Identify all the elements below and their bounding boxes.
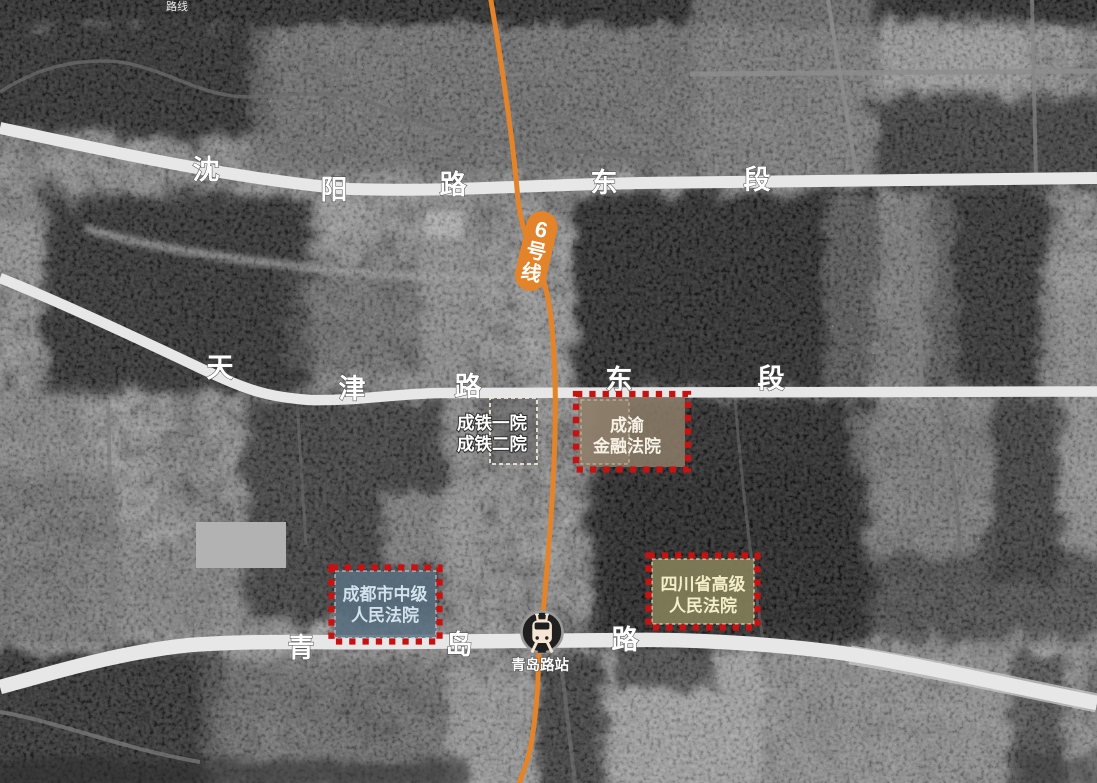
- svg-text:成铁一院: 成铁一院: [457, 413, 527, 433]
- svg-text:段: 段: [744, 165, 771, 195]
- svg-text:路: 路: [612, 624, 640, 655]
- svg-text:青岛路站: 青岛路站: [511, 656, 569, 674]
- svg-text:路: 路: [440, 169, 468, 200]
- svg-text:沈: 沈: [193, 155, 220, 185]
- svg-text:四川省高级: 四川省高级: [661, 574, 746, 594]
- svg-text:天: 天: [207, 353, 234, 383]
- svg-text:青: 青: [288, 633, 315, 663]
- svg-text:东: 东: [591, 167, 618, 198]
- svg-text:成铁二院: 成铁二院: [457, 434, 527, 454]
- svg-text:东: 东: [606, 364, 633, 395]
- svg-text:岛: 岛: [446, 629, 473, 660]
- svg-text:段: 段: [758, 364, 785, 394]
- svg-text:路线: 路线: [166, 0, 188, 13]
- svg-text:成都市中级: 成都市中级: [343, 584, 428, 604]
- svg-text:人民法院: 人民法院: [669, 596, 737, 616]
- svg-text:金融法院: 金融法院: [592, 436, 661, 456]
- svg-text:人民法院: 人民法院: [351, 605, 419, 625]
- svg-text:津: 津: [339, 374, 366, 404]
- svg-text:路: 路: [455, 371, 483, 402]
- svg-text:成渝: 成渝: [610, 415, 645, 435]
- svg-text:阳: 阳: [321, 175, 348, 205]
